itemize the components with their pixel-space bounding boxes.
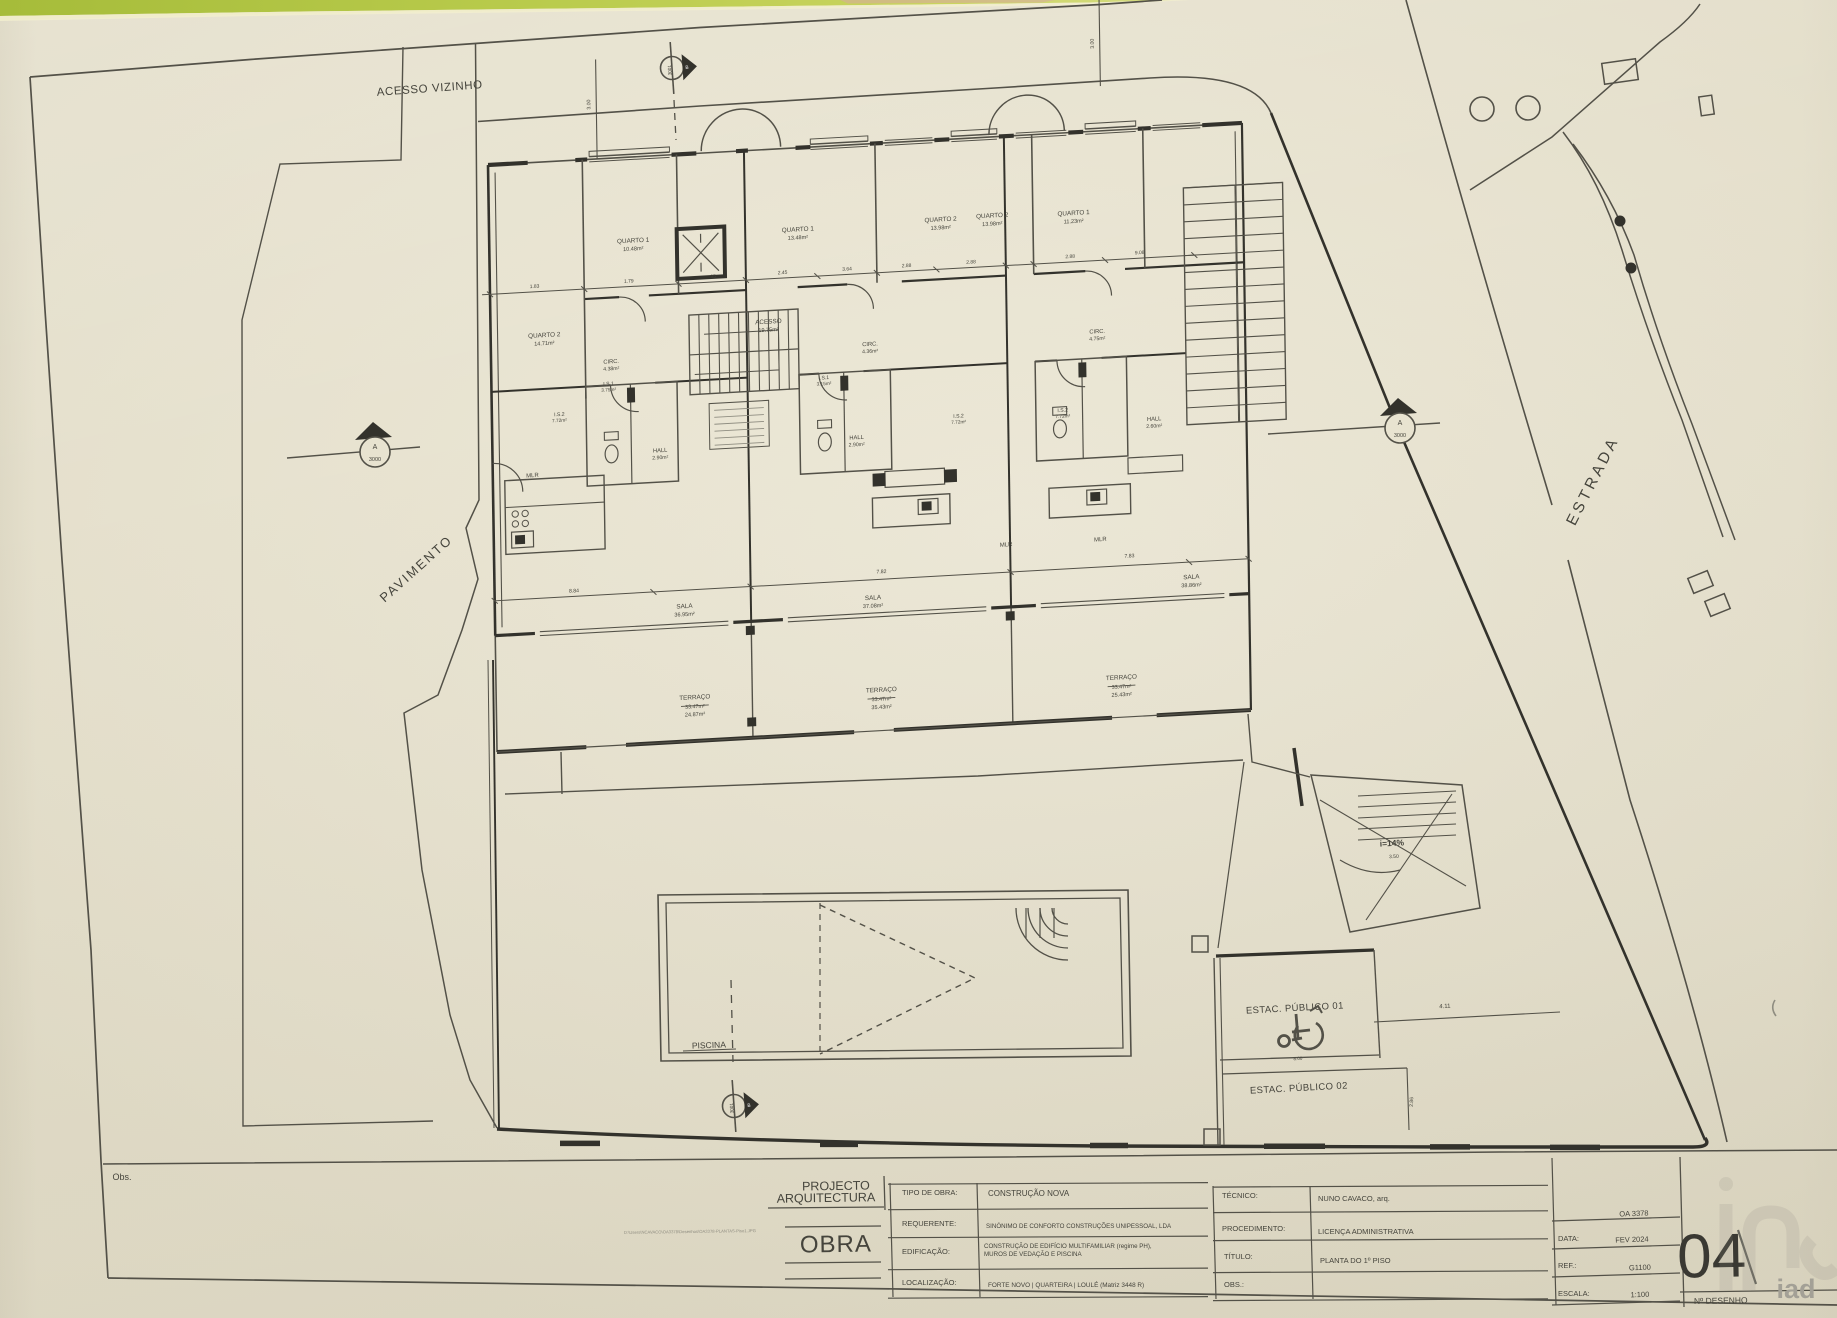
svg-text:9.08: 9.08 bbox=[1135, 250, 1145, 257]
svg-text:CONSTRUÇÃO DE EDIFÍCIO MULTIFA: CONSTRUÇÃO DE EDIFÍCIO MULTIFAMILIAR (re… bbox=[984, 1243, 1152, 1250]
svg-text:MLR: MLR bbox=[526, 473, 539, 480]
svg-text:25.43m²: 25.43m² bbox=[1111, 692, 1132, 699]
svg-text:2.60m²: 2.60m² bbox=[1146, 423, 1162, 430]
svg-text:QUARTO 2: QUARTO 2 bbox=[924, 216, 957, 225]
svg-text:3000: 3000 bbox=[369, 457, 381, 463]
svg-text:4.36m²: 4.36m² bbox=[862, 348, 878, 355]
svg-text:DATA:: DATA: bbox=[1558, 1234, 1579, 1243]
svg-text:HALL: HALL bbox=[1147, 416, 1161, 423]
svg-text:Obs.: Obs. bbox=[112, 1172, 131, 1182]
svg-text:19.75m²: 19.75m² bbox=[758, 327, 779, 334]
svg-text:TIPO DE OBRA:: TIPO DE OBRA: bbox=[902, 1188, 957, 1197]
svg-text:TÉCNICO:: TÉCNICO: bbox=[1222, 1191, 1258, 1200]
svg-text:7.72m²: 7.72m² bbox=[552, 417, 567, 424]
svg-text:I.S.2: I.S.2 bbox=[953, 413, 964, 420]
svg-text:REF.:: REF.: bbox=[1558, 1261, 1576, 1270]
svg-text:ESCALA:: ESCALA: bbox=[1558, 1289, 1590, 1298]
svg-text:1:100: 1:100 bbox=[1630, 1290, 1649, 1300]
svg-text:MLR: MLR bbox=[1000, 542, 1013, 549]
svg-text:3.00: 3.00 bbox=[1090, 38, 1096, 49]
svg-text:QUARTO 1: QUARTO 1 bbox=[782, 225, 815, 234]
svg-text:CIRC.: CIRC. bbox=[862, 341, 878, 348]
svg-text:3001: 3001 bbox=[667, 64, 673, 75]
svg-text:36.95m²: 36.95m² bbox=[674, 612, 695, 619]
svg-text:CIRC.: CIRC. bbox=[1089, 329, 1105, 336]
svg-text:3.64: 3.64 bbox=[842, 266, 852, 273]
svg-text:I.S.1: I.S.1 bbox=[819, 375, 830, 382]
svg-text:A: A bbox=[1398, 420, 1403, 427]
svg-text:TERRAÇO: TERRAÇO bbox=[866, 686, 897, 695]
svg-text:MLR: MLR bbox=[1094, 537, 1107, 544]
svg-text:13.98m²: 13.98m² bbox=[982, 221, 1003, 228]
svg-text:2.45: 2.45 bbox=[778, 270, 788, 277]
svg-text:3001: 3001 bbox=[729, 1102, 735, 1113]
svg-text:NUNO CAVACO, arq.: NUNO CAVACO, arq. bbox=[1318, 1194, 1390, 1203]
svg-text:QUARTO 2: QUARTO 2 bbox=[528, 331, 561, 340]
svg-text:2.90m²: 2.90m² bbox=[652, 455, 668, 462]
svg-text:OBS.:: OBS.: bbox=[1224, 1280, 1244, 1289]
svg-text:1.79: 1.79 bbox=[624, 278, 634, 285]
svg-text:HALL: HALL bbox=[653, 448, 667, 455]
svg-text:FEV 2024: FEV 2024 bbox=[1615, 1234, 1649, 1244]
svg-text:13.48m²: 13.48m² bbox=[788, 235, 809, 242]
svg-text:3000: 3000 bbox=[1394, 433, 1406, 439]
svg-text:8.84: 8.84 bbox=[569, 588, 579, 595]
svg-text:OBRA: OBRA bbox=[800, 1230, 872, 1258]
svg-text:2.90m²: 2.90m² bbox=[849, 442, 865, 449]
svg-text:SALA: SALA bbox=[676, 603, 693, 611]
svg-text:2.86: 2.86 bbox=[1409, 1097, 1416, 1107]
svg-text:CIRC.: CIRC. bbox=[603, 359, 619, 366]
svg-text:PISCINA: PISCINA bbox=[692, 1039, 727, 1050]
svg-text:4.38m²: 4.38m² bbox=[603, 366, 619, 373]
svg-text:I.S.2: I.S.2 bbox=[1057, 407, 1068, 414]
svg-text:33.47m²: 33.47m² bbox=[872, 696, 892, 703]
svg-text:14.71m²: 14.71m² bbox=[534, 341, 555, 348]
svg-text:7.83: 7.83 bbox=[1124, 553, 1134, 560]
svg-text:TERRAÇO: TERRAÇO bbox=[1106, 674, 1137, 683]
svg-text:A: A bbox=[373, 444, 378, 451]
svg-text:TERRAÇO: TERRAÇO bbox=[679, 693, 710, 702]
svg-text:SALA: SALA bbox=[1183, 573, 1200, 581]
svg-text:OA 3378: OA 3378 bbox=[1619, 1208, 1648, 1218]
svg-text:EDIFICAÇÃO:: EDIFICAÇÃO: bbox=[902, 1247, 950, 1256]
svg-text:D:\Users\NCAVACO\OA3378\Desenh: D:\Users\NCAVACO\OA3378\Desenhos\OA3378-… bbox=[624, 1228, 756, 1235]
svg-text:04: 04 bbox=[1677, 1221, 1747, 1291]
svg-text:ARQUITECTURA: ARQUITECTURA bbox=[777, 1190, 876, 1205]
svg-text:35: 35 bbox=[710, 274, 716, 280]
svg-text:CONSTRUÇÃO NOVA: CONSTRUÇÃO NOVA bbox=[988, 1189, 1070, 1198]
svg-text:LOCALIZAÇÃO:: LOCALIZAÇÃO: bbox=[902, 1278, 957, 1287]
svg-text:REQUERENTE:: REQUERENTE: bbox=[902, 1219, 956, 1228]
svg-text:QUARTO 1: QUARTO 1 bbox=[617, 237, 650, 246]
svg-text:7.82: 7.82 bbox=[876, 569, 886, 576]
svg-text:33.47m²: 33.47m² bbox=[1112, 684, 1132, 691]
svg-text:PROCEDIMENTO:: PROCEDIMENTO: bbox=[1222, 1224, 1285, 1233]
svg-text:ESTRADA: ESTRADA bbox=[1563, 434, 1623, 529]
svg-text:B: B bbox=[685, 65, 689, 71]
svg-text:PLANTA DO 1º PISO: PLANTA DO 1º PISO bbox=[1320, 1256, 1391, 1265]
svg-text:G1100: G1100 bbox=[1629, 1263, 1651, 1273]
svg-text:8.00: 8.00 bbox=[1293, 1056, 1303, 1061]
svg-text:3.00: 3.00 bbox=[586, 99, 592, 110]
svg-text:QUARTO 1: QUARTO 1 bbox=[1057, 209, 1090, 218]
svg-text:Nº DESENHO: Nº DESENHO bbox=[1694, 1295, 1748, 1306]
svg-text:35.43m²: 35.43m² bbox=[871, 704, 892, 711]
svg-text:7.72m²: 7.72m² bbox=[1055, 413, 1070, 420]
svg-text:ACESSO VIZINHO: ACESSO VIZINHO bbox=[376, 79, 483, 99]
svg-text:I.S.1: I.S.1 bbox=[603, 381, 614, 388]
svg-text:iad: iad bbox=[1776, 1274, 1815, 1304]
svg-text:SALA: SALA bbox=[865, 594, 882, 602]
svg-text:11.23m²: 11.23m² bbox=[1064, 218, 1084, 225]
svg-text:ACESSO: ACESSO bbox=[755, 318, 782, 326]
svg-text:4.75m²: 4.75m² bbox=[1089, 336, 1105, 343]
svg-text:1.83: 1.83 bbox=[530, 284, 540, 291]
svg-text:PAVIMENTO: PAVIMENTO bbox=[377, 532, 456, 605]
svg-text:13.98m²: 13.98m² bbox=[931, 225, 952, 232]
svg-text:33.47m²: 33.47m² bbox=[685, 704, 705, 711]
svg-text:QUARTO 2: QUARTO 2 bbox=[976, 212, 1009, 221]
svg-text:LICENÇA ADMINISTRATIVA: LICENÇA ADMINISTRATIVA bbox=[1318, 1227, 1414, 1236]
svg-text:HALL: HALL bbox=[849, 435, 863, 442]
svg-text:i=14%: i=14% bbox=[1379, 837, 1404, 848]
svg-text:7.72m²: 7.72m² bbox=[951, 419, 966, 426]
svg-text:3.15m²: 3.15m² bbox=[817, 381, 832, 388]
svg-text:3.75m²: 3.75m² bbox=[601, 387, 616, 394]
svg-text:MUROS DE VEDAÇÃO E PISCINA: MUROS DE VEDAÇÃO E PISCINA bbox=[984, 1251, 1083, 1258]
svg-text:4.11: 4.11 bbox=[1439, 1004, 1451, 1011]
svg-text:TÍTULO:: TÍTULO: bbox=[1224, 1252, 1253, 1261]
svg-text:3.50: 3.50 bbox=[1389, 854, 1399, 861]
svg-text:I.S.2: I.S.2 bbox=[554, 412, 565, 419]
svg-text:10.48m²: 10.48m² bbox=[623, 246, 644, 253]
svg-text:2.88: 2.88 bbox=[902, 263, 912, 270]
svg-text:FORTE NOVO | QUARTEIRA | LOULÉ: FORTE NOVO | QUARTEIRA | LOULÉ (Matriz 3… bbox=[988, 1280, 1144, 1289]
svg-text:2.88: 2.88 bbox=[966, 259, 976, 266]
svg-text:ESTAC. PÚBLICO 02: ESTAC. PÚBLICO 02 bbox=[1250, 1080, 1348, 1096]
svg-text:2.88: 2.88 bbox=[1065, 254, 1075, 261]
svg-text:38.86m²: 38.86m² bbox=[1181, 582, 1202, 589]
svg-text:37.08m²: 37.08m² bbox=[863, 603, 884, 610]
svg-text:24.87m²: 24.87m² bbox=[685, 712, 706, 719]
svg-text:SINÓNIMO DE CONFORTO CONSTRUÇÕ: SINÓNIMO DE CONFORTO CONSTRUÇÕES UNIPESS… bbox=[986, 1223, 1172, 1230]
svg-text:B: B bbox=[747, 1103, 751, 1109]
